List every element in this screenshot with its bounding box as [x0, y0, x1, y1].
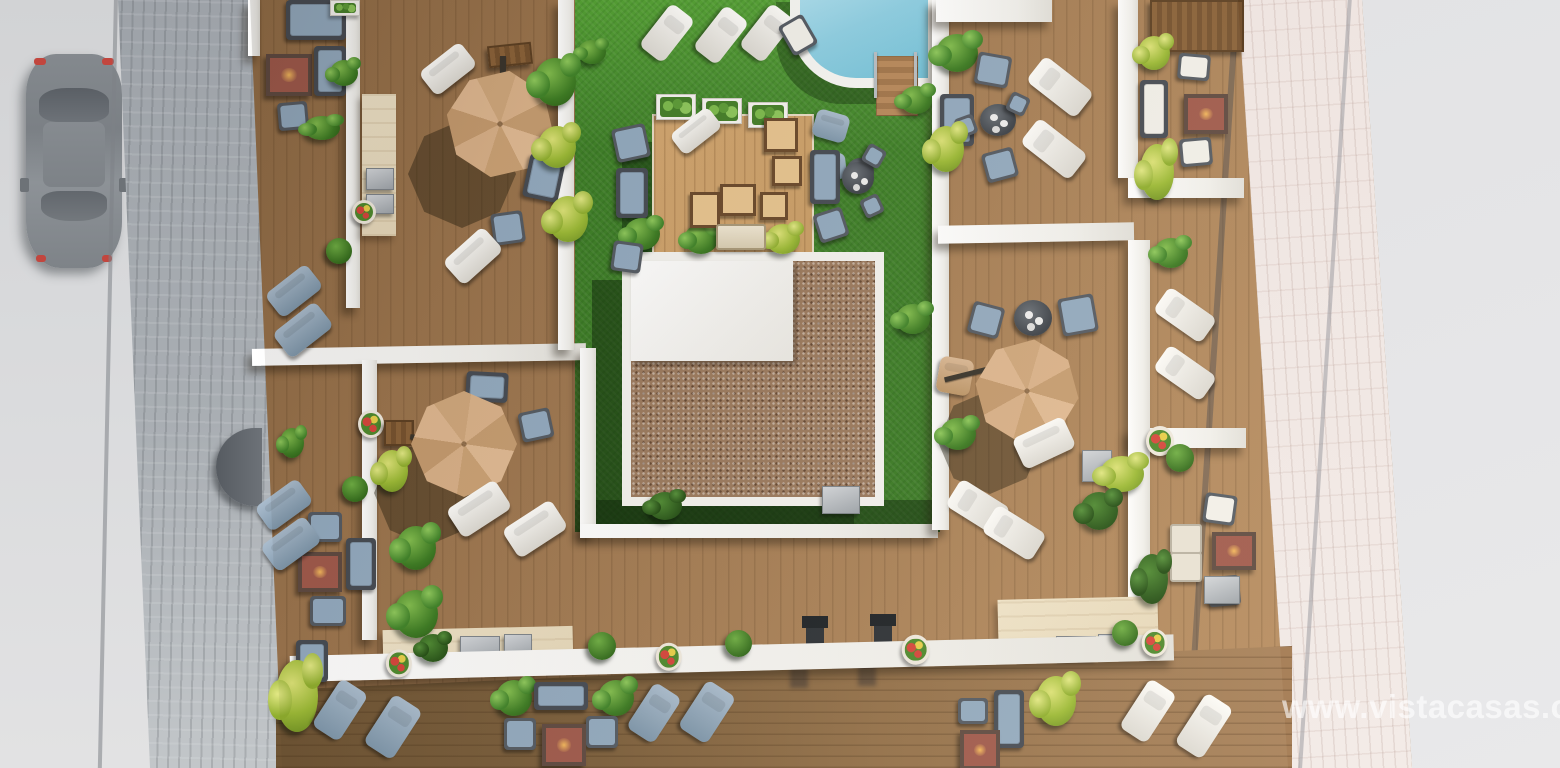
- side-table: [384, 420, 414, 446]
- bench: [716, 224, 766, 250]
- low-table: [764, 118, 798, 152]
- roof-edge: [936, 0, 1052, 22]
- pool-handrail: [874, 52, 877, 98]
- car-headlight: [36, 255, 46, 262]
- shrub: [304, 116, 340, 140]
- car-windshield: [41, 191, 106, 221]
- flower-pot: [1141, 629, 1168, 658]
- topiary-ball: [1112, 620, 1138, 646]
- armchair: [973, 51, 1012, 88]
- flower-pot: [386, 649, 413, 678]
- low-table: [772, 156, 802, 186]
- car-roof: [43, 122, 104, 186]
- shrub: [900, 86, 932, 114]
- palm-plant: [1138, 36, 1170, 70]
- armchair: [586, 716, 618, 748]
- topiary-ball: [588, 632, 616, 660]
- palm-plant: [1100, 456, 1144, 492]
- central-roof-structure: [622, 252, 884, 506]
- topiary-ball: [326, 238, 352, 264]
- storage-box: [1204, 576, 1240, 604]
- flower-pot: [655, 642, 682, 671]
- shrub: [496, 680, 532, 716]
- shrub: [396, 526, 436, 570]
- palm-plant: [538, 126, 576, 168]
- shrub: [936, 34, 978, 72]
- outdoor-sofa: [616, 168, 648, 218]
- ottoman: [1170, 552, 1202, 582]
- armchair: [611, 123, 651, 163]
- flower-pot: [358, 410, 384, 438]
- shrub: [534, 58, 576, 106]
- palm-plant: [1036, 676, 1076, 726]
- ac-unit: [822, 486, 860, 514]
- side-table: [487, 42, 533, 68]
- topiary-ball: [342, 476, 368, 502]
- shrub: [330, 60, 358, 86]
- low-table: [720, 184, 756, 216]
- palm-plant: [276, 660, 318, 732]
- shrub: [648, 492, 682, 520]
- fire-pit-table: [1184, 94, 1228, 134]
- divider-wall: [248, 0, 260, 56]
- car-rear-window: [39, 88, 108, 122]
- palm-plant: [376, 450, 408, 492]
- low-table: [690, 192, 720, 228]
- parked-car: [26, 54, 122, 268]
- armchair: [1057, 293, 1099, 337]
- fire-pit-table: [542, 724, 586, 766]
- divider-wall: [346, 0, 360, 308]
- planter-box: [330, 0, 360, 16]
- shrub: [684, 224, 718, 254]
- car-taillight: [34, 58, 46, 65]
- outdoor-sofa: [1140, 80, 1168, 138]
- outdoor-sofa: [534, 682, 588, 710]
- ottoman: [1170, 524, 1202, 554]
- shrub: [578, 40, 606, 64]
- planter-box: [656, 94, 696, 120]
- armchair: [1177, 53, 1211, 82]
- topiary-ball: [725, 630, 752, 657]
- flower-pot: [901, 634, 930, 665]
- palm-plant: [548, 196, 588, 242]
- palm-plant: [928, 126, 964, 172]
- armchair: [1202, 492, 1238, 526]
- armchair: [1179, 137, 1213, 168]
- car-mirror: [20, 178, 29, 192]
- divider-wall: [362, 360, 377, 640]
- divider-wall: [1118, 0, 1138, 178]
- shrub: [394, 590, 438, 638]
- armchair: [610, 240, 644, 274]
- fire-pit-table: [1212, 532, 1256, 570]
- flower-pot: [352, 200, 376, 224]
- bistro-table: [842, 162, 874, 194]
- low-table: [760, 192, 788, 220]
- watermark: www.vistacasas.com: [1282, 688, 1560, 726]
- armchair: [310, 596, 346, 626]
- white-roof-section: [631, 261, 793, 361]
- topiary-ball: [1166, 444, 1194, 472]
- palm-plant: [1140, 144, 1174, 200]
- fire-pit-table: [298, 552, 342, 592]
- shrub: [896, 304, 930, 334]
- shrub: [940, 418, 976, 450]
- outdoor-sofa: [810, 150, 840, 204]
- shrub: [1154, 238, 1188, 268]
- shrub: [280, 428, 304, 458]
- shrub: [418, 634, 448, 662]
- courtyard-wall-left: [580, 348, 596, 534]
- shrub: [1080, 492, 1118, 530]
- palm-plant: [766, 224, 800, 254]
- armchair: [958, 698, 988, 724]
- dining-table: [1014, 300, 1052, 336]
- fire-pit-table: [960, 730, 1000, 768]
- armchair: [504, 718, 536, 750]
- aerial-render: www.vistacasas.com: [0, 0, 1560, 768]
- courtyard-wall-bottom: [580, 524, 938, 538]
- divider-wall: [938, 222, 1134, 243]
- fire-pit-table: [266, 54, 312, 96]
- shrub: [1136, 554, 1168, 604]
- outdoor-sofa: [346, 538, 376, 590]
- shrub: [598, 680, 634, 716]
- counter-sink: [366, 168, 394, 190]
